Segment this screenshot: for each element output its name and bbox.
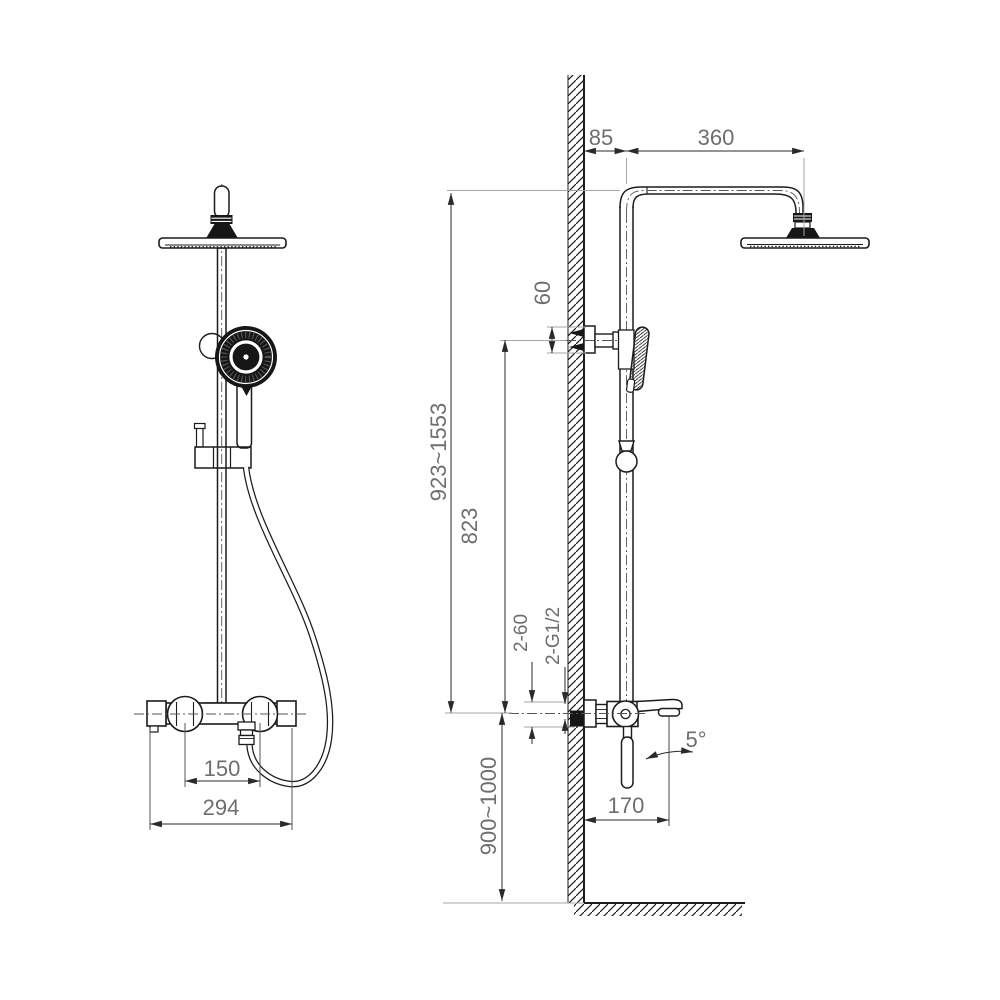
wall-section (568, 75, 584, 903)
dim-label-150: 150 (204, 756, 241, 781)
dim-label-2-g12: 2-G1/2 (543, 607, 564, 665)
dim-label-823: 823 (457, 508, 482, 545)
hose-nut-front (238, 722, 255, 745)
dim-label-900-1000: 900~1000 (476, 757, 501, 856)
dim-label-170: 170 (608, 793, 645, 818)
spout-tip (659, 709, 680, 717)
eccentric-connector (570, 711, 584, 727)
mixer-lever-side (622, 737, 634, 788)
technical-drawing-page: 150 294 (0, 0, 1000, 1000)
dim-label-2-60: 2-60 (511, 614, 532, 652)
dim-label-85: 85 (589, 125, 613, 150)
check-valve-front (150, 726, 158, 732)
dim-label-60: 60 (530, 281, 555, 305)
dim-label-5deg: 5° (685, 727, 706, 752)
dim-label-294: 294 (203, 795, 240, 820)
dim-label-360: 360 (698, 125, 735, 150)
rain-shower-head-front (159, 238, 286, 248)
dim-label-923-1553: 923~1553 (426, 403, 451, 502)
shower-system-drawing: 150 294 (0, 0, 1000, 1000)
